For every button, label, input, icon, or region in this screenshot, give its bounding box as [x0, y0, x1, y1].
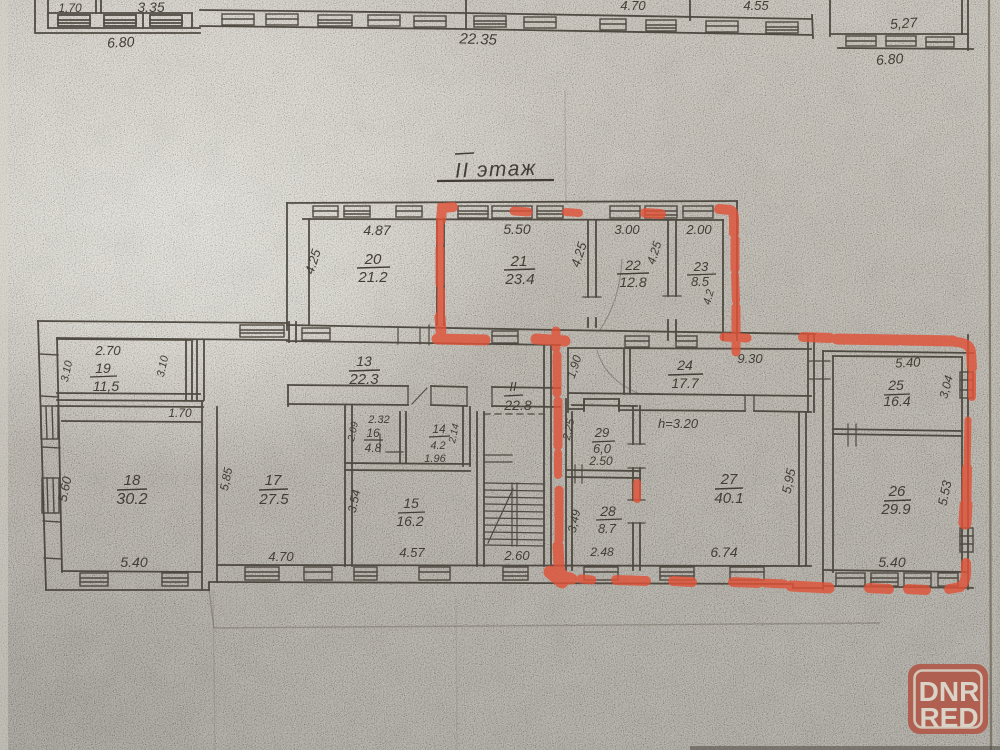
svg-text:24: 24 [676, 357, 693, 373]
svg-text:4.55: 4.55 [743, 0, 769, 13]
svg-text:22.3: 22.3 [348, 371, 379, 388]
svg-text:22: 22 [624, 257, 641, 273]
svg-text:17: 17 [265, 472, 282, 489]
svg-text:21.2: 21.2 [357, 269, 388, 286]
svg-text:4.8: 4.8 [365, 441, 382, 455]
svg-text:5.40: 5.40 [895, 354, 922, 370]
svg-text:9.30: 9.30 [737, 351, 763, 366]
svg-text:6.80: 6.80 [107, 33, 135, 50]
svg-text:22.35: 22.35 [458, 30, 498, 48]
svg-text:21: 21 [510, 253, 528, 270]
svg-text:22.8: 22.8 [503, 397, 531, 413]
svg-text:II этаж: II этаж [455, 157, 538, 183]
svg-text:II: II [509, 379, 517, 394]
svg-text:6.80: 6.80 [876, 50, 905, 68]
svg-text:8.7: 8.7 [598, 521, 617, 536]
svg-text:h=3.20: h=3.20 [658, 416, 699, 431]
svg-text:2.60: 2.60 [503, 548, 530, 563]
svg-text:27: 27 [720, 471, 738, 488]
svg-text:15: 15 [403, 495, 419, 511]
svg-text:16.4: 16.4 [883, 393, 910, 409]
svg-text:13: 13 [356, 353, 372, 369]
svg-text:16: 16 [366, 426, 380, 440]
svg-text:3.35: 3.35 [137, 0, 164, 15]
svg-text:3.00: 3.00 [614, 222, 640, 237]
svg-text:5,27: 5,27 [890, 14, 920, 32]
svg-text:6.74: 6.74 [710, 544, 737, 560]
svg-text:23: 23 [693, 259, 709, 274]
svg-text:11,5: 11,5 [93, 378, 119, 394]
svg-text:5.50: 5.50 [503, 221, 530, 237]
svg-text:19: 19 [95, 360, 111, 376]
svg-text:4.70: 4.70 [620, 0, 646, 13]
svg-text:40.1: 40.1 [714, 490, 743, 507]
svg-text:17.7: 17.7 [671, 375, 699, 391]
svg-text:2.32: 2.32 [367, 414, 389, 426]
svg-text:2.48: 2.48 [589, 545, 614, 559]
svg-text:12.8: 12.8 [619, 274, 646, 290]
svg-text:4.2: 4.2 [430, 440, 445, 452]
svg-text:5.40: 5.40 [878, 554, 905, 570]
svg-text:26: 26 [888, 483, 906, 500]
svg-text:4.70: 4.70 [268, 549, 294, 564]
svg-text:27.5: 27.5 [258, 491, 289, 508]
svg-text:1.96: 1.96 [424, 453, 446, 465]
svg-text:14: 14 [432, 422, 446, 436]
svg-text:2.70: 2.70 [94, 343, 121, 358]
svg-text:4.57: 4.57 [399, 545, 425, 560]
svg-text:29: 29 [594, 425, 609, 440]
svg-text:2.50: 2.50 [588, 454, 613, 468]
svg-text:30.2: 30.2 [116, 491, 147, 508]
svg-text:5.40: 5.40 [120, 554, 147, 570]
svg-text:25: 25 [887, 377, 904, 393]
svg-text:16.2: 16.2 [396, 513, 423, 529]
svg-text:18: 18 [124, 472, 141, 489]
svg-text:20: 20 [364, 251, 382, 268]
svg-text:4.87: 4.87 [363, 222, 391, 238]
svg-text:28: 28 [599, 503, 616, 519]
svg-text:RED: RED [919, 702, 978, 733]
svg-text:1.70: 1.70 [168, 406, 192, 420]
svg-text:1,70: 1,70 [58, 1, 82, 15]
svg-text:29.9: 29.9 [880, 501, 911, 518]
svg-text:2.00: 2.00 [685, 222, 712, 237]
svg-text:8.5: 8.5 [691, 274, 710, 289]
svg-text:23.4: 23.4 [504, 271, 534, 288]
